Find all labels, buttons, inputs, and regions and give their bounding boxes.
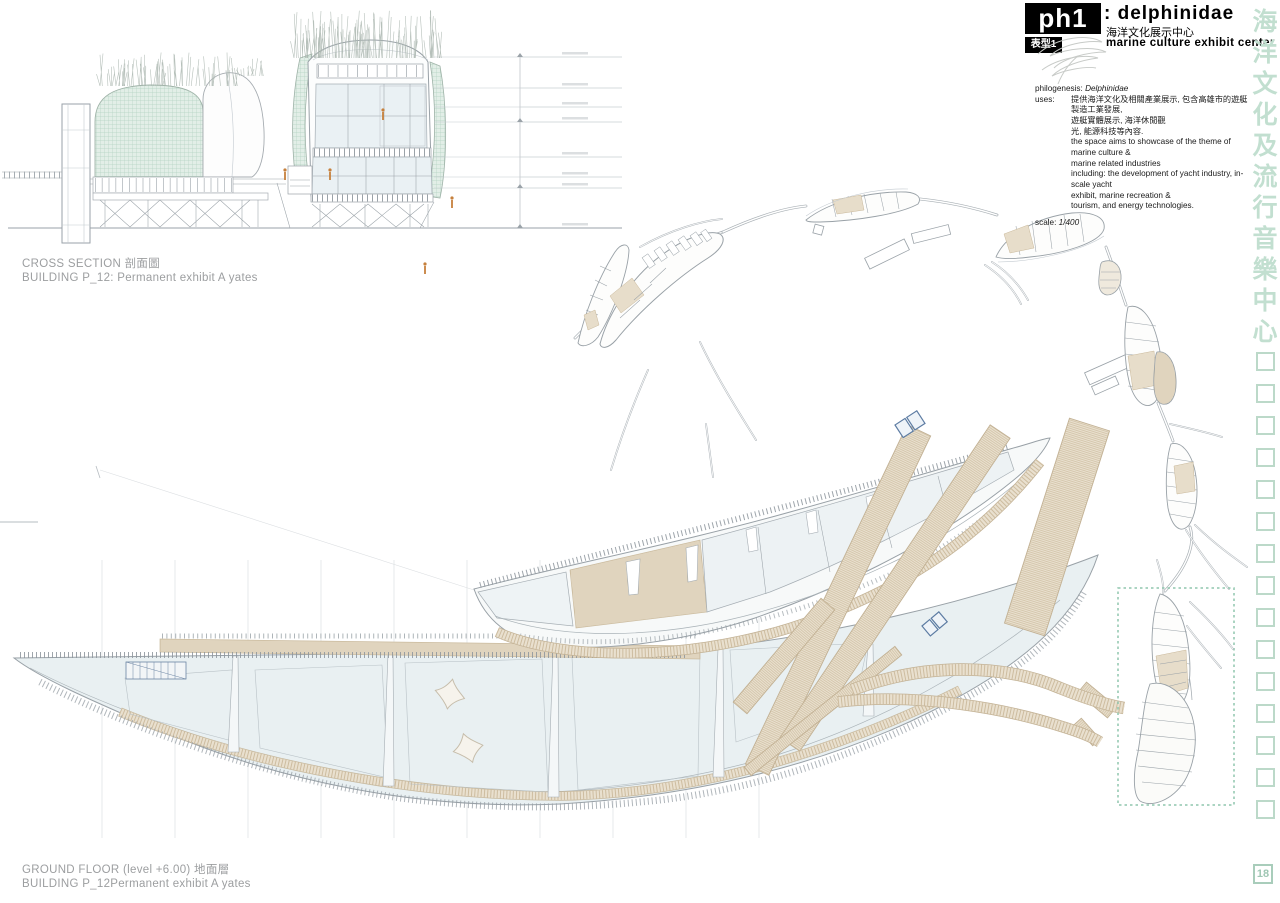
- margin-square: [1256, 416, 1275, 435]
- left-pavilion-section: [93, 71, 268, 227]
- walkway-piers: [813, 224, 1132, 395]
- level-lines: [434, 52, 622, 228]
- margin-square: [1256, 736, 1275, 755]
- right-pavilion-section: [277, 40, 446, 228]
- uses-label: uses:: [1035, 95, 1071, 212]
- philogenesis-label: philogenesis:: [1035, 84, 1083, 95]
- ground-floor-caption-line2: BUILDING P_12Permanent exhibit A yates: [22, 877, 251, 891]
- margin-square: [1256, 800, 1275, 819]
- cross-section-drawing: [2, 10, 622, 274]
- cross-section-caption-line1: CROSS SECTION 剖面圖: [22, 257, 258, 271]
- tower-shaft: [62, 104, 90, 243]
- margin-square: [1256, 640, 1275, 659]
- pencil-sketch: [1028, 26, 1118, 88]
- pavilion-southeast-2: [1166, 444, 1197, 530]
- philogenesis-value: Delphinidae: [1085, 84, 1128, 95]
- margin-square: [1256, 384, 1275, 403]
- margin-square: [1256, 576, 1275, 595]
- detail-callout-box: [1118, 588, 1234, 805]
- margin-square: [1256, 704, 1275, 723]
- margin-square: [1256, 512, 1275, 531]
- margin-char: 心: [1250, 312, 1280, 348]
- pavilion-cluster-west: [578, 229, 723, 347]
- margin-square: [1256, 352, 1275, 371]
- stair-block: [126, 662, 186, 679]
- ground-floor-plan: [0, 411, 1234, 838]
- margin-square: [1256, 448, 1275, 467]
- presentation-sheet: ph1 表型1 : delphinidae 海洋文化展示中心 marine cu…: [0, 0, 1280, 903]
- project-name: : delphinidae: [1104, 3, 1234, 25]
- margin-square: [1256, 480, 1275, 499]
- ground-floor-caption-line1: GROUND FLOOR (level +6.00) 地面層: [22, 863, 251, 877]
- ground-floor-caption: GROUND FLOOR (level +6.00) 地面層 BUILDING …: [22, 863, 251, 892]
- pavilion-southeast-1: [1125, 306, 1176, 405]
- scale-label: scale:: [1035, 218, 1056, 227]
- pavilion-north: [806, 189, 920, 222]
- margin-square: [1256, 544, 1275, 563]
- cross-section-caption-line2: BUILDING P_12: Permanent exhibit A yates: [22, 271, 258, 285]
- project-info-block: philogenesis: Delphinidae uses: 提供海洋文化及相…: [1035, 84, 1250, 229]
- margin-square: [1256, 672, 1275, 691]
- detail-pod-lower: [1134, 683, 1196, 803]
- margin-square: [1256, 768, 1275, 787]
- page-number: 18: [1253, 864, 1273, 884]
- margin-square: [1256, 608, 1275, 627]
- uses-text: 提供海洋文化及相關產業展示, 包含高雄市的遊艇製造工業發展, 遊艇實體展示, 海…: [1071, 95, 1250, 212]
- cross-section-caption: CROSS SECTION 剖面圖 BUILDING P_12: Permane…: [22, 257, 258, 286]
- scale-value: 1/400: [1059, 218, 1080, 227]
